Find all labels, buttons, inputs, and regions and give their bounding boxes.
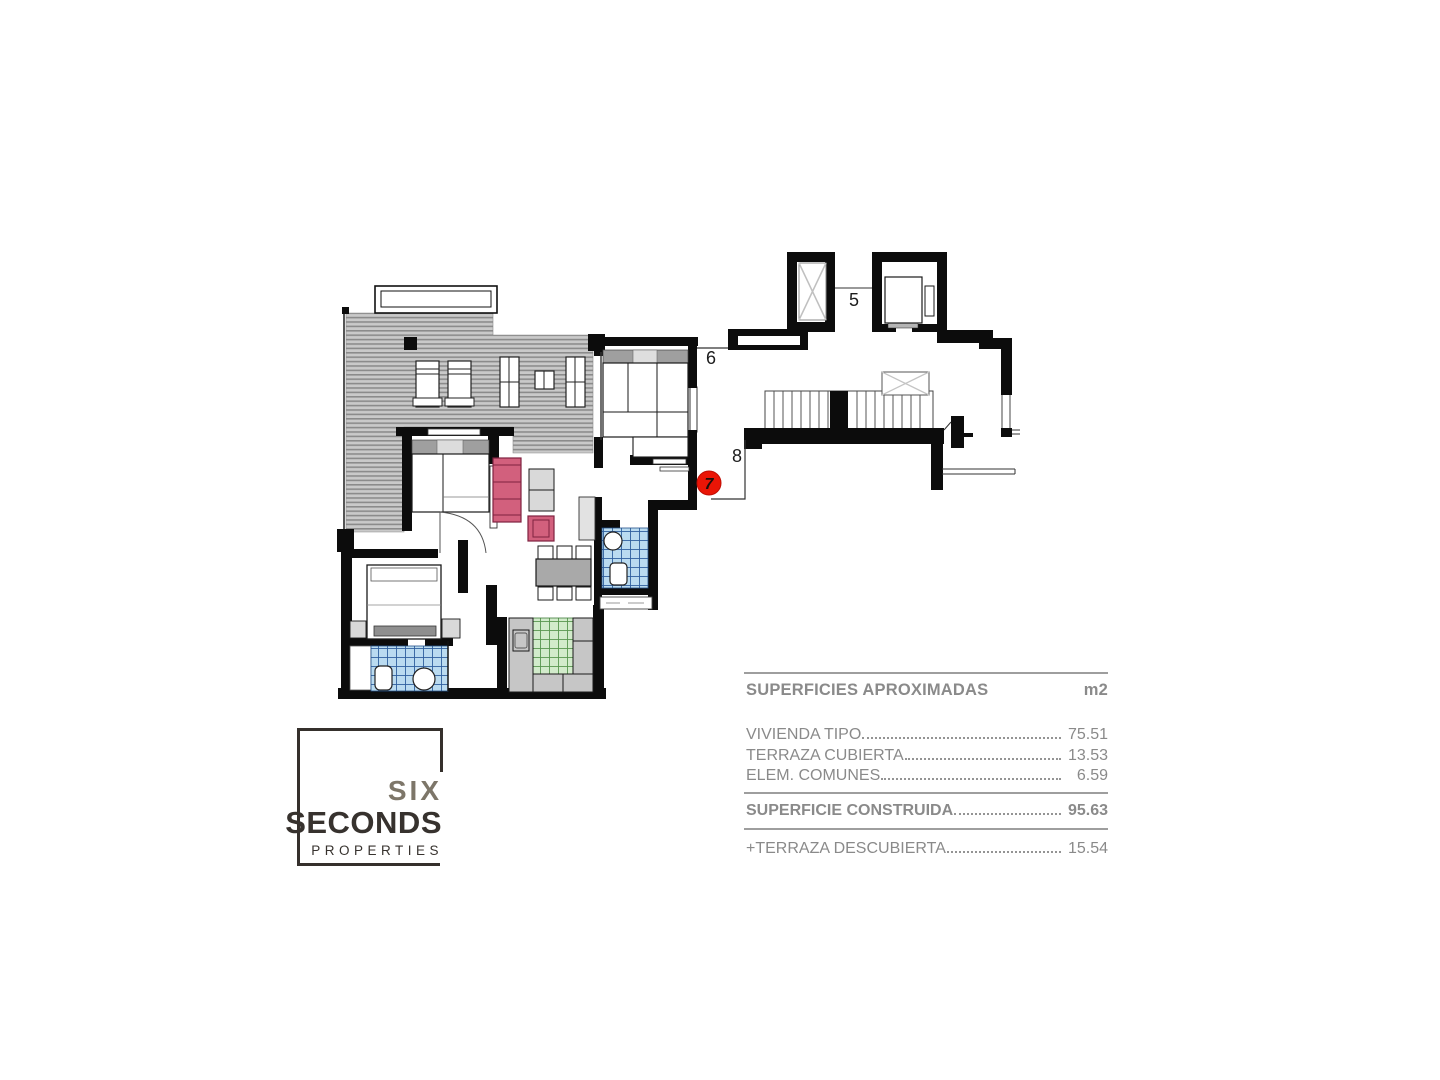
terrace-table — [535, 371, 554, 389]
terrace-table — [566, 357, 585, 407]
bedroom-bottom — [350, 565, 460, 639]
chair — [576, 587, 591, 600]
bedroom-middle — [412, 440, 497, 553]
terrace-table — [500, 357, 519, 407]
kitchen-counter — [573, 618, 593, 674]
floorplan-page: 5 6 8 7 SUPERFICIES APROXIMADAS m2 VIVIE… — [0, 0, 1440, 1080]
row-value: 95.63 — [1062, 801, 1108, 822]
armchair — [528, 516, 554, 541]
dot-leader — [905, 758, 1061, 760]
label-zone-6: 6 — [706, 348, 716, 368]
kitchen-tiles — [533, 618, 573, 674]
logo-word-six: SIX — [388, 777, 442, 805]
elevator-door — [888, 323, 918, 328]
logo-word-seconds: SECONDS — [285, 807, 442, 838]
window — [1002, 394, 1010, 430]
double-bed — [412, 454, 489, 512]
areas-table: SUPERFICIES APROXIMADAS m2 VIVIENDA TIPO… — [744, 672, 1108, 860]
logo-word-properties: PROPERTIES — [311, 844, 443, 858]
elevator-shaft — [872, 252, 947, 342]
dining-set — [536, 546, 591, 600]
table-rule — [744, 792, 1108, 794]
chair — [576, 546, 591, 559]
row-value: 13.53 — [1062, 746, 1108, 767]
bed-pillow — [437, 440, 463, 454]
chair — [557, 587, 572, 600]
table-title: SUPERFICIES APROXIMADAS — [746, 681, 988, 700]
nightstand — [442, 619, 460, 638]
row-label: ELEM. COMUNES — [746, 766, 880, 787]
row-value: 15.54 — [1062, 839, 1108, 860]
bed-pillow — [371, 568, 437, 581]
row-label: VIVIENDA TIPO — [746, 725, 861, 746]
bathroom-ensuite — [350, 641, 448, 691]
table-rule — [744, 828, 1108, 830]
dot-leader — [881, 778, 1061, 780]
shaft-box — [882, 372, 929, 395]
cabinet — [579, 497, 595, 540]
shelf — [653, 459, 686, 464]
dining-table — [536, 559, 591, 586]
row-value: 6.59 — [1062, 766, 1108, 787]
sofa — [493, 458, 521, 522]
unit-number-badge: 7 — [697, 471, 721, 495]
railing — [942, 469, 1015, 474]
table-header: SUPERFICIES APROXIMADAS m2 — [746, 681, 1108, 700]
sun-lounger — [413, 361, 442, 407]
chair — [557, 546, 572, 559]
sun-lounger — [445, 361, 474, 407]
toilet — [375, 666, 392, 690]
bed-bench — [633, 437, 688, 457]
washbasin — [413, 668, 435, 690]
table-total-row: SUPERFICIE CONSTRUIDA 95.63 — [746, 801, 1108, 822]
shelf — [660, 467, 689, 471]
kitchen — [509, 618, 593, 692]
toilet — [610, 563, 627, 585]
table-row: ELEM. COMUNES 6.59 — [746, 766, 1108, 787]
kitchen-counter — [509, 618, 533, 692]
label-zone-5: 5 — [849, 290, 859, 310]
chair — [538, 587, 553, 600]
bed-footboard — [374, 626, 436, 636]
row-label: SUPERFICIE CONSTRUIDA — [746, 801, 953, 822]
shower-tray — [350, 646, 371, 690]
floorplan-drawing: 5 6 8 7 — [320, 245, 1040, 720]
elevator-shaft — [787, 252, 835, 332]
planter — [375, 286, 497, 313]
table-row: VIVIENDA TIPO 75.51 — [746, 725, 1108, 746]
double-bed — [603, 363, 688, 437]
table-row: TERRAZA CUBIERTA 13.53 — [746, 746, 1108, 767]
living-room — [493, 458, 595, 600]
door — [944, 416, 973, 448]
row-label: +TERRAZA DESCUBIERTA — [746, 839, 946, 860]
nightstand — [350, 621, 366, 638]
bed-pillow — [633, 350, 657, 363]
table-unit: m2 — [1084, 681, 1108, 700]
elevator-counterweight — [925, 286, 934, 316]
bathroom-small — [600, 528, 652, 609]
table-extra-row: +TERRAZA DESCUBIERTA 15.54 — [746, 839, 1108, 860]
chair — [538, 546, 553, 559]
dot-leader — [862, 737, 1061, 739]
six-seconds-logo: SIX SECONDS PROPERTIES — [297, 728, 443, 866]
terrace-column — [404, 337, 417, 350]
washbasin — [604, 532, 622, 550]
row-value: 75.51 — [1062, 725, 1108, 746]
label-zone-8: 8 — [732, 446, 742, 466]
bedroom-main — [603, 350, 689, 471]
dot-leader — [954, 813, 1061, 815]
elevator-car — [885, 277, 922, 323]
coffee-table — [529, 469, 554, 511]
staircase — [765, 391, 933, 433]
table-rule — [744, 672, 1108, 674]
row-label: TERRAZA CUBIERTA — [746, 746, 904, 767]
dot-leader — [947, 851, 1061, 853]
unit-number: 7 — [705, 476, 715, 493]
